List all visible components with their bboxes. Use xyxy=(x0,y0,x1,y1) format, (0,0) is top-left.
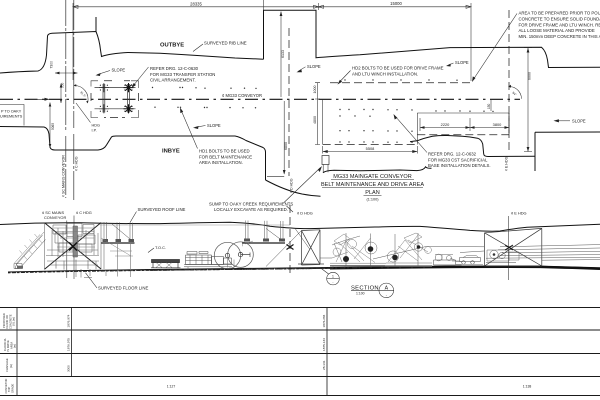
svg-text:MIN. 150mm DEEP CONCRETE IN TH: MIN. 150mm DEEP CONCRETE IN THIS AREA xyxy=(519,34,600,39)
svg-text:15000: 15000 xyxy=(390,1,402,6)
svg-text:REFER DRG. 12-C-0632: REFER DRG. 12-C-0632 xyxy=(428,152,477,157)
svg-text:150: 150 xyxy=(487,103,491,109)
svg-text:PLAN: PLAN xyxy=(365,190,380,196)
svg-text:LOCALLY EXCAVATE AS REQUIRED.: LOCALLY EXCAVATE AS REQUIRED. xyxy=(214,207,288,212)
svg-text:28.131: 28.131 xyxy=(322,360,326,370)
svg-text:1:100: 1:100 xyxy=(356,292,365,296)
svg-text:SLOPE: SLOPE xyxy=(455,60,469,65)
svg-text:SLOPE: SLOPE xyxy=(112,68,126,73)
svg-text:1876.975: 1876.975 xyxy=(67,338,71,351)
svg-text:28335: 28335 xyxy=(190,1,202,6)
svg-text:P TO OAKY: P TO OAKY xyxy=(1,110,22,114)
svg-text:¢ C HDG: ¢ C HDG xyxy=(76,210,92,215)
svg-text:5508: 5508 xyxy=(366,146,375,151)
svg-text:1876.284: 1876.284 xyxy=(322,314,326,327)
svg-text:FOR MG33 CST SACRIFICIAL: FOR MG33 CST SACRIFICIAL xyxy=(428,157,488,162)
svg-text:BELT MAINTENANCE AND DRIVE ARE: BELT MAINTENANCE AND DRIVE AREA xyxy=(321,182,424,188)
svg-text:¢ SC MAINS CONVEYOR: ¢ SC MAINS CONVEYOR xyxy=(62,155,66,197)
svg-text:CONVEYOR: CONVEYOR xyxy=(44,215,66,220)
svg-text:OUTBYE: OUTBYE xyxy=(160,43,184,49)
svg-text:(m): (m) xyxy=(9,364,13,368)
svg-text:HD1 BOLTS TO BE USED: HD1 BOLTS TO BE USED xyxy=(199,149,250,154)
svg-text:INBYE: INBYE xyxy=(162,149,180,155)
svg-text:6800: 6800 xyxy=(284,142,288,150)
svg-text:1876.974: 1876.974 xyxy=(67,314,71,327)
svg-text:7300: 7300 xyxy=(50,61,54,69)
svg-text:FOR DRIVE FRAME AND LTU WINCH.: FOR DRIVE FRAME AND LTU WINCH. REMOVE xyxy=(519,22,600,27)
svg-text:SLOPE: SLOPE xyxy=(307,64,321,69)
svg-text:¢ MG33 CONVEYOR: ¢ MG33 CONVEYOR xyxy=(222,93,262,98)
svg-text:SLOPE: SLOPE xyxy=(572,118,586,123)
svg-text:6133: 6133 xyxy=(281,50,285,58)
svg-text:FOR BELT MAINTENANCE: FOR BELT MAINTENANCE xyxy=(199,154,252,159)
svg-text:¢ C HDG: ¢ C HDG xyxy=(75,156,79,171)
svg-text:1:127: 1:127 xyxy=(167,385,176,389)
svg-text:6000: 6000 xyxy=(528,72,532,80)
svg-text:1000: 1000 xyxy=(313,86,317,94)
svg-text:2220: 2220 xyxy=(441,122,450,127)
svg-text:5065: 5065 xyxy=(51,123,55,130)
svg-text:AREA INSTALLATION.: AREA INSTALLATION. xyxy=(199,160,243,165)
svg-text:AND LTU WINCH INSTALLATION.: AND LTU WINCH INSTALLATION. xyxy=(352,71,418,76)
svg-text:A: A xyxy=(385,286,389,292)
svg-text:3800: 3800 xyxy=(493,122,502,127)
svg-text:SLOPE: SLOPE xyxy=(207,123,221,128)
svg-text:CIVIL ARRANGEMENT.: CIVIL ARRANGEMENT. xyxy=(150,78,196,83)
svg-text:CONCRETE TO ENSURE SOLID FOUND: CONCRETE TO ENSURE SOLID FOUNDATION xyxy=(519,17,600,22)
svg-text:-: - xyxy=(332,280,333,284)
svg-text:ALL LOOSE MATERIAL AND PROVIDE: ALL LOOSE MATERIAL AND PROVIDE xyxy=(519,28,595,33)
svg-text:CHAINAGE: CHAINAGE xyxy=(5,358,9,372)
svg-text:SECTION: SECTION xyxy=(351,285,379,291)
svg-text:GRADE: GRADE xyxy=(10,384,14,393)
svg-text:SURVEYED RIB LINE: SURVEYED RIB LINE xyxy=(204,41,247,46)
svg-text:1875.134: 1875.134 xyxy=(322,338,326,351)
svg-text:¢ D HDG: ¢ D HDG xyxy=(290,178,294,193)
svg-text:HDG: HDG xyxy=(92,124,100,128)
svg-text:T.O.C.: T.O.C. xyxy=(155,245,166,250)
svg-text:¢ D HDG: ¢ D HDG xyxy=(297,211,313,216)
svg-text:350: 350 xyxy=(61,82,65,88)
svg-text:MG33 MAINGATE CONVEYOR: MG33 MAINGATE CONVEYOR xyxy=(333,174,412,180)
svg-text:SURVEYED ROOF LINE: SURVEYED ROOF LINE xyxy=(138,207,186,212)
svg-text:1: 1 xyxy=(332,275,334,279)
svg-text:QUIREMENTS: QUIREMENTS xyxy=(0,115,23,119)
svg-text:4800: 4800 xyxy=(313,116,317,124)
svg-text:LVL (m): LVL (m) xyxy=(12,317,16,326)
svg-text:3000: 3000 xyxy=(67,365,71,372)
svg-text:BASE INSTALLATION DETAILS.: BASE INSTALLATION DETAILS. xyxy=(428,163,491,168)
svg-text:FOR MG33 TRANSFER STATION: FOR MG33 TRANSFER STATION xyxy=(150,72,215,77)
svg-text:I.P.: I.P. xyxy=(92,129,97,133)
svg-text:SURVEYED FLOOR LINE: SURVEYED FLOOR LINE xyxy=(98,286,148,291)
svg-text:SUMP TO OAKY CREEK REQUIREMENT: SUMP TO OAKY CREEK REQUIREMENTS xyxy=(209,201,293,206)
svg-text:(1:100): (1:100) xyxy=(366,198,379,202)
svg-text:¢ E HDG: ¢ E HDG xyxy=(504,156,508,171)
svg-text:AREA TO BE PREPARED PRIOR TO P: AREA TO BE PREPARED PRIOR TO POURING xyxy=(519,11,600,16)
svg-text:HD2 BOLTS TO BE USED FOR DRIVE: HD2 BOLTS TO BE USED FOR DRIVE FRAME xyxy=(352,66,444,71)
svg-text:(m): (m) xyxy=(13,344,17,348)
svg-text:REFER DRG. 12-C-0630: REFER DRG. 12-C-0630 xyxy=(150,66,199,71)
svg-text:1:138: 1:138 xyxy=(523,385,532,389)
svg-text:¢ E HDG: ¢ E HDG xyxy=(511,211,527,216)
